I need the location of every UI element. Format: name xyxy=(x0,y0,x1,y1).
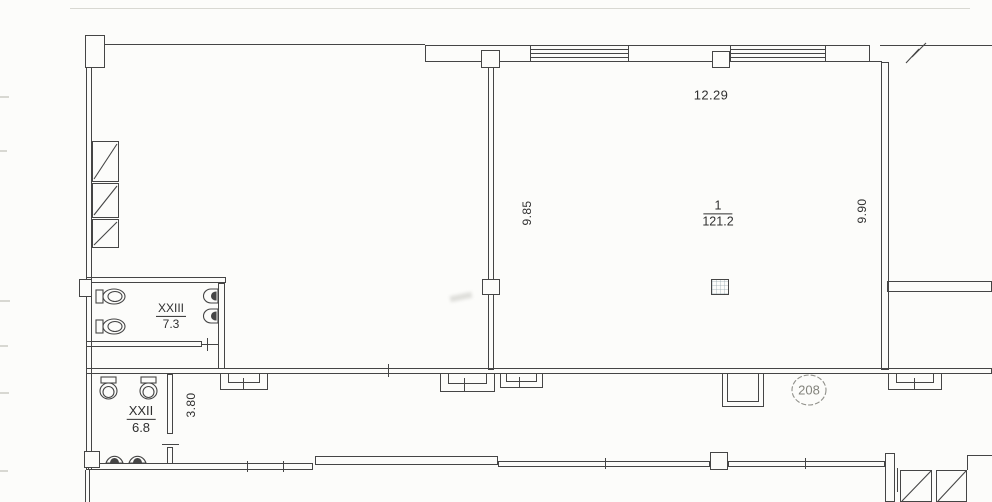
floorplan-sheet: 12.29 9.85 9.90 3.80 1 121.2 XXIII 7.3 X… xyxy=(0,0,992,502)
toilet-icon xyxy=(100,377,117,399)
shaft-diagonal xyxy=(94,186,117,215)
dim-right-vertical: 9.90 xyxy=(855,199,869,224)
break-symbol-icon xyxy=(906,43,926,63)
room-number: XXIII xyxy=(156,302,186,317)
room-number: 1 xyxy=(704,199,733,214)
shaft-diagonal xyxy=(94,144,117,179)
room-label-wc-upper: XXIII 7.3 xyxy=(156,302,186,330)
urinal-icon xyxy=(129,456,146,463)
room-label-main: 1 121.2 xyxy=(702,199,733,228)
wall-toilet-icon xyxy=(204,289,218,303)
dim-corridor-vertical: 3.80 xyxy=(184,393,198,418)
toilet-icon xyxy=(140,377,157,399)
room-area: 121.2 xyxy=(702,215,733,229)
elevator-diagonal xyxy=(902,471,931,501)
room-area: 7.3 xyxy=(156,317,186,331)
dim-mid-vertical: 9.85 xyxy=(520,201,534,226)
shaft-diagonal xyxy=(94,222,117,245)
wall-toilet-icon xyxy=(204,309,218,323)
room-label-wc-lower: XXII 6.8 xyxy=(127,404,156,434)
toilet-icon xyxy=(96,319,125,334)
room-area: 6.8 xyxy=(127,420,156,435)
door-ref-label: 208 xyxy=(798,383,820,398)
dim-top: 12.29 xyxy=(694,88,729,103)
elevator-diagonal xyxy=(938,471,966,501)
urinal-icon xyxy=(106,456,123,463)
toilet-icon xyxy=(96,289,125,304)
room-number: XXII xyxy=(127,404,156,420)
